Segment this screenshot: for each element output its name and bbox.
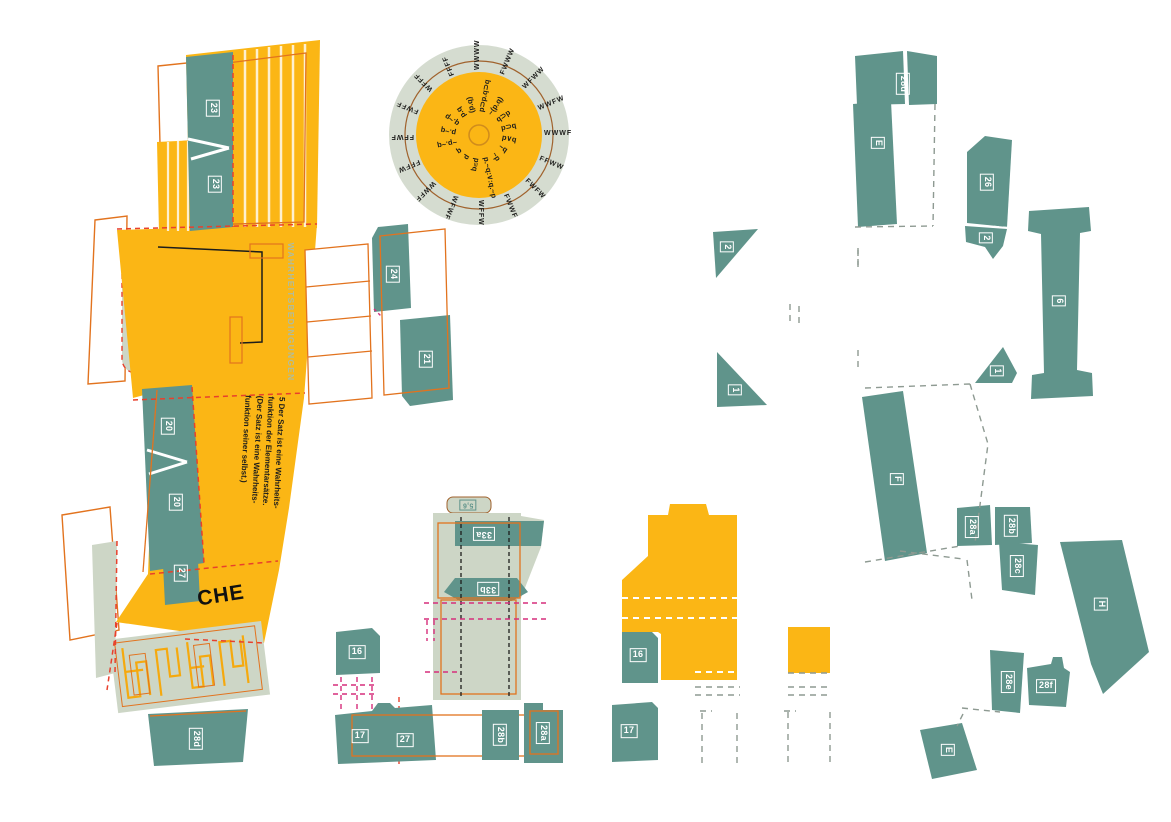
tab-17-label: 17 [352,729,369,743]
tab-27-label: 27 [397,733,414,747]
tab-28c-label: 28c [1010,555,1024,577]
tab-28a-label: 28a [536,722,550,744]
disc-truth-sequence: WFFW [477,200,484,226]
tab-20-top-label: 20 [161,418,175,435]
tab-28d-left-label: 28d [189,728,203,750]
tab-28d-right-label: 28d [896,73,910,95]
column-6-label: 6 [1052,295,1066,306]
tab-21-label: 21 [419,351,433,368]
right-pieces-group [853,51,1149,779]
tab-27-left-label: 27 [174,565,188,582]
castle-tab-16-label: 16 [630,648,647,662]
tab-33a-label: 33a [473,527,495,541]
piece-26-label: 26 [980,174,994,191]
tab-28b-right-label: 28b [1004,515,1018,537]
tab-5-6-label: 5,6 [460,499,477,510]
template-geometry: WWWWFWWWWFWWWWFWWWWFFFWWFWFWFWWFWFFWWFWF… [0,0,1171,822]
disc-yellow [416,72,542,198]
castle-square [788,627,830,673]
gray-guides [695,250,858,763]
tractatus-note: 5 Der Satz ist eine Wahrheits- funktion … [236,395,287,521]
disc-truth-sequence: FFWF [391,133,414,140]
triangle-2-shape [713,229,758,278]
papercraft-template-sheet: WWWWFWWWWFWWWWFWWWWFFFWWFWFWFWWFWFFWWFWF… [0,0,1171,822]
maze-panel [109,621,270,713]
white-strips-block [305,244,372,404]
tab-23-bottom-label: 23 [208,176,222,193]
triangle-2-label: 2 [720,241,734,252]
tab-28d-shape-right-2 [907,51,937,105]
tab-20-bottom-label: 20 [169,494,183,511]
tab-24-label: 24 [386,266,400,283]
tab-2-label: 2 [979,232,993,243]
tab-28f-label: 28f [1036,679,1056,693]
tab-e-bottom-label: E [941,744,955,756]
tab-28a-right-label: 28a [965,516,979,538]
triangle-1-shape [717,352,767,407]
castle-tab-17-label: 17 [621,724,638,738]
tab-16-label: 16 [349,645,366,659]
disc-truth-sequence: WWWW [474,40,481,70]
tab-33b-label: 33b [477,582,499,596]
wahrheitsbedingungen-label: WAHRHEITSBEDINGUNGEN [286,243,296,382]
bar-e-label: E [871,137,885,149]
tab-1-right-label: 1 [990,365,1004,376]
tab-28e-label: 28e [1001,671,1015,693]
bar-e-shape [853,101,897,227]
triangle-1-label: 1 [728,384,742,395]
column-h-shape [1060,540,1149,694]
tab-33a-band [455,521,544,546]
yellow-castle-piece [612,229,858,763]
tab-28b-label: 28b [493,724,507,746]
tab-23-top-label: 23 [206,100,220,117]
tab-17-27-shape [335,703,436,764]
disc-truth-sequence: WWWF [544,130,572,137]
column-h-label: H [1094,598,1108,611]
bar-f-label: F [890,473,904,485]
truth-table-disc: WWWWFWWWWFWWWWFWWWWFFFWWFWFWFWWFWFFWWFWF… [389,40,572,226]
